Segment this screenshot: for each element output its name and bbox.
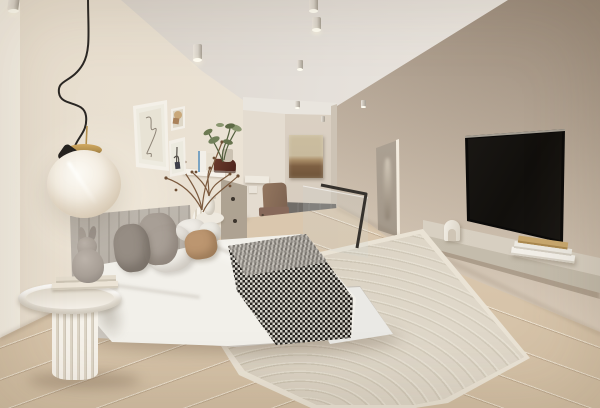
portrait-artwork-figure <box>384 158 391 220</box>
spotlight-8 <box>321 116 325 122</box>
abstract-painting <box>289 135 323 178</box>
wall-desk <box>245 176 269 184</box>
standing-book-white <box>198 151 206 172</box>
spotlight-4-lens <box>312 28 321 32</box>
spotlight-2-lens <box>193 58 202 62</box>
arch-bookend-notch <box>448 229 456 241</box>
spotlight-6-lens <box>295 107 300 109</box>
spotlight-5-lens <box>297 68 303 71</box>
bedroom-render <box>0 0 600 408</box>
dresser-knob-2 <box>233 219 237 223</box>
bunny-figurine-body <box>72 249 104 283</box>
side-table-dish <box>26 287 114 309</box>
bedside-vase <box>204 196 215 215</box>
spotlight-3-lens <box>309 9 318 13</box>
spotlight-1-lens <box>8 9 19 13</box>
spotlight-7-lens <box>361 106 366 108</box>
plant-pot <box>222 149 233 162</box>
dresser-knob-1 <box>231 197 235 201</box>
side-table-pedestal <box>52 303 98 380</box>
wall-panel-small <box>249 186 257 193</box>
